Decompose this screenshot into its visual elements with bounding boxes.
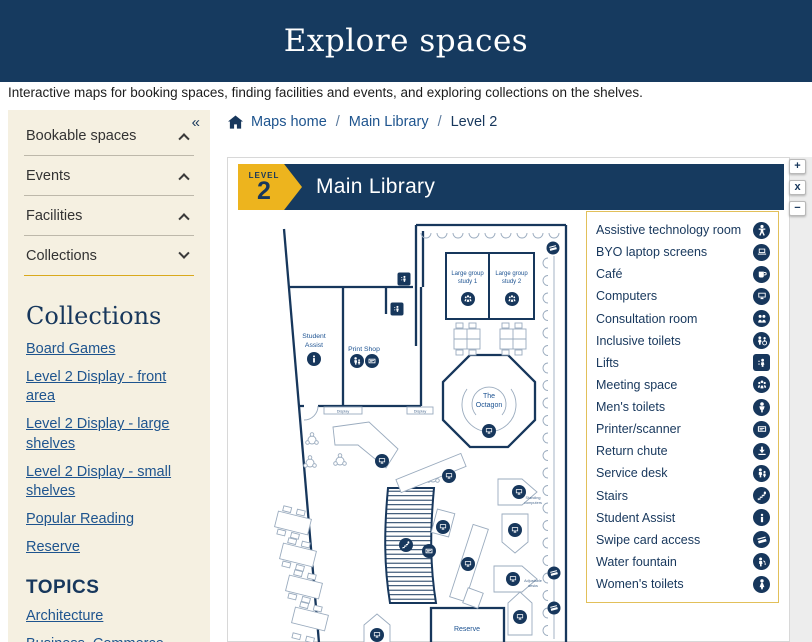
- legend-item[interactable]: Café: [596, 263, 770, 285]
- breadcrumb: Maps home / Main Library / Level 2: [228, 114, 497, 130]
- accordion-collections[interactable]: Collections: [24, 236, 194, 276]
- chair-row-top: [421, 233, 559, 238]
- computer-marker[interactable]: [482, 424, 496, 438]
- page-header: Explore spaces: [0, 0, 812, 82]
- meeting-space-icon: [753, 376, 770, 393]
- computer-marker[interactable]: [436, 520, 450, 534]
- water-fountain-icon: [753, 553, 770, 570]
- lift-marker[interactable]: [391, 303, 404, 316]
- legend-item[interactable]: Return chute: [596, 440, 770, 462]
- legend-item[interactable]: Service desk: [596, 462, 770, 484]
- lounge-chair: [304, 456, 317, 468]
- svg-text:Large group: Large group: [495, 271, 528, 277]
- reserve-walls: [431, 608, 504, 642]
- collection-link-popular-reading[interactable]: Popular Reading: [26, 510, 194, 529]
- svg-text:Reserve: Reserve: [454, 626, 480, 633]
- legend-item[interactable]: Inclusive toilets: [596, 330, 770, 352]
- service-desk-icon: [753, 465, 770, 482]
- lounge-chair: [334, 454, 347, 466]
- intro-text: Interactive maps for booking spaces, fin…: [8, 85, 798, 100]
- lounge-chair: [306, 433, 319, 445]
- topics-heading: TOPICS: [26, 577, 194, 599]
- map-title-bar: LEVEL 2 Main Library: [238, 164, 784, 210]
- lift-icon: [753, 354, 770, 371]
- table: [284, 569, 324, 605]
- collections-heading: Collections: [26, 302, 194, 330]
- legend-item[interactable]: Water fountain: [596, 551, 770, 573]
- floor-plan[interactable]: The Octagon Display Display: [236, 211, 586, 642]
- chevron-up-icon: [178, 133, 189, 144]
- topic-link-business[interactable]: Business, Commerce, Economics: [26, 635, 194, 642]
- computer-marker[interactable]: [508, 523, 522, 537]
- service-desk-marker[interactable]: [350, 354, 364, 368]
- meeting-space-marker[interactable]: [461, 292, 475, 306]
- collection-link-small-shelves[interactable]: Level 2 Display - small shelves: [26, 463, 194, 501]
- legend-item[interactable]: Consultation room: [596, 308, 770, 330]
- computer-marker[interactable]: [375, 454, 389, 468]
- breadcrumb-separator: /: [438, 114, 442, 130]
- level-badge: LEVEL 2: [238, 164, 302, 210]
- accordion-facilities[interactable]: Facilities: [24, 196, 194, 236]
- swipe-card-marker[interactable]: [547, 242, 560, 255]
- legend-item[interactable]: Women's toilets: [596, 573, 770, 595]
- home-icon[interactable]: [228, 115, 243, 129]
- computer-icon: [753, 288, 770, 305]
- inclusive-toilets-icon: [753, 332, 770, 349]
- svg-text:Standing: Standing: [526, 496, 541, 500]
- collection-link-large-shelves[interactable]: Level 2 Display - large shelves: [26, 415, 194, 453]
- swipe-card-icon: [753, 531, 770, 548]
- svg-text:Student: Student: [302, 333, 326, 340]
- womens-toilets-icon: [753, 576, 770, 593]
- svg-text:Octagon: Octagon: [476, 402, 503, 409]
- svg-text:Display: Display: [414, 409, 427, 413]
- svg-text:study 1: study 1: [458, 279, 478, 285]
- cafe-icon: [753, 266, 770, 283]
- printer-marker[interactable]: [365, 354, 379, 368]
- laptop-screen-icon: [753, 244, 770, 261]
- legend-item[interactable]: Meeting space: [596, 374, 770, 396]
- return-chute-icon: [753, 443, 770, 460]
- swipe-card-marker[interactable]: [548, 602, 561, 615]
- legend-item[interactable]: BYO laptop screens: [596, 241, 770, 263]
- sidebar-collapse-icon[interactable]: «: [192, 114, 200, 131]
- map-title: Main Library: [316, 164, 435, 210]
- accordion-bookable-spaces[interactable]: Bookable spaces: [24, 116, 194, 156]
- legend-item[interactable]: Computers: [596, 285, 770, 307]
- printer-scanner-icon: [753, 421, 770, 438]
- page-title: Explore spaces: [284, 23, 528, 59]
- breadcrumb-separator: /: [336, 114, 340, 130]
- collection-link-reserve[interactable]: Reserve: [26, 538, 194, 557]
- legend-item[interactable]: Student Assist: [596, 507, 770, 529]
- legend-item[interactable]: Swipe card access: [596, 529, 770, 551]
- computer-marker[interactable]: [442, 469, 456, 483]
- svg-text:Display: Display: [337, 409, 350, 413]
- chevron-up-icon: [178, 173, 189, 184]
- map-legend: Assistive technology room BYO laptop scr…: [586, 211, 779, 603]
- collection-link-board-games[interactable]: Board Games: [26, 340, 194, 359]
- map-panel: LEVEL 2 Main Library Assistive technolog…: [227, 157, 790, 642]
- topic-link-architecture[interactable]: Architecture: [26, 607, 194, 626]
- computer-marker[interactable]: [370, 628, 384, 642]
- computer-marker[interactable]: [506, 572, 520, 586]
- sidebar: « Bookable spaces Events Facilities Coll…: [8, 110, 210, 642]
- stairs-icon: [753, 487, 770, 504]
- legend-item[interactable]: Stairs: [596, 485, 770, 507]
- door-arc: [304, 406, 318, 420]
- stairs-marker[interactable]: [399, 538, 413, 552]
- page-gutter: [790, 157, 812, 642]
- study-table: [500, 323, 526, 355]
- svg-text:Large group: Large group: [451, 271, 484, 277]
- computer-marker[interactable]: [512, 485, 526, 499]
- mens-toilets-icon: [753, 399, 770, 416]
- swipe-card-marker[interactable]: [548, 567, 561, 580]
- study-table: [454, 323, 480, 355]
- close-button[interactable]: x: [789, 180, 806, 195]
- chair-column-right: [543, 256, 554, 639]
- legend-item[interactable]: Printer/scanner: [596, 418, 770, 440]
- legend-item[interactable]: Lifts: [596, 352, 770, 374]
- map-zoom-controls: + x −: [789, 159, 807, 222]
- chevron-down-icon: [178, 248, 189, 259]
- table: [288, 601, 330, 642]
- collection-link-front-area[interactable]: Level 2 Display - front area: [26, 368, 194, 406]
- consultation-room-icon: [753, 310, 770, 327]
- desk-pod: [396, 453, 466, 492]
- lift-marker[interactable]: [398, 273, 411, 286]
- computer-marker[interactable]: [513, 610, 527, 624]
- group-study-walls: [446, 253, 534, 319]
- svg-text:Assist: Assist: [305, 342, 323, 349]
- legend-item[interactable]: Assistive technology room: [596, 219, 770, 241]
- zoom-in-button[interactable]: +: [789, 159, 806, 174]
- svg-text:desks: desks: [528, 584, 538, 588]
- breadcrumb-maps-home[interactable]: Maps home: [251, 114, 327, 130]
- student-assist-marker[interactable]: [307, 352, 321, 366]
- svg-text:computers: computers: [524, 501, 542, 505]
- svg-text:study 2: study 2: [502, 279, 522, 285]
- breadcrumb-current: Level 2: [451, 114, 498, 130]
- legend-item[interactable]: Men's toilets: [596, 396, 770, 418]
- zoom-out-button[interactable]: −: [789, 201, 806, 216]
- accordion-events[interactable]: Events: [24, 156, 194, 196]
- svg-text:Print Shop: Print Shop: [348, 346, 380, 353]
- svg-text:The: The: [483, 393, 495, 400]
- chevron-up-icon: [178, 213, 189, 224]
- computer-marker[interactable]: [461, 557, 475, 571]
- meeting-space-marker[interactable]: [505, 292, 519, 306]
- svg-text:Adjustable: Adjustable: [524, 579, 542, 583]
- breadcrumb-main-library[interactable]: Main Library: [349, 114, 429, 130]
- printer-marker[interactable]: [422, 544, 436, 558]
- student-assist-icon: [753, 509, 770, 526]
- assistive-technology-icon: [753, 222, 770, 239]
